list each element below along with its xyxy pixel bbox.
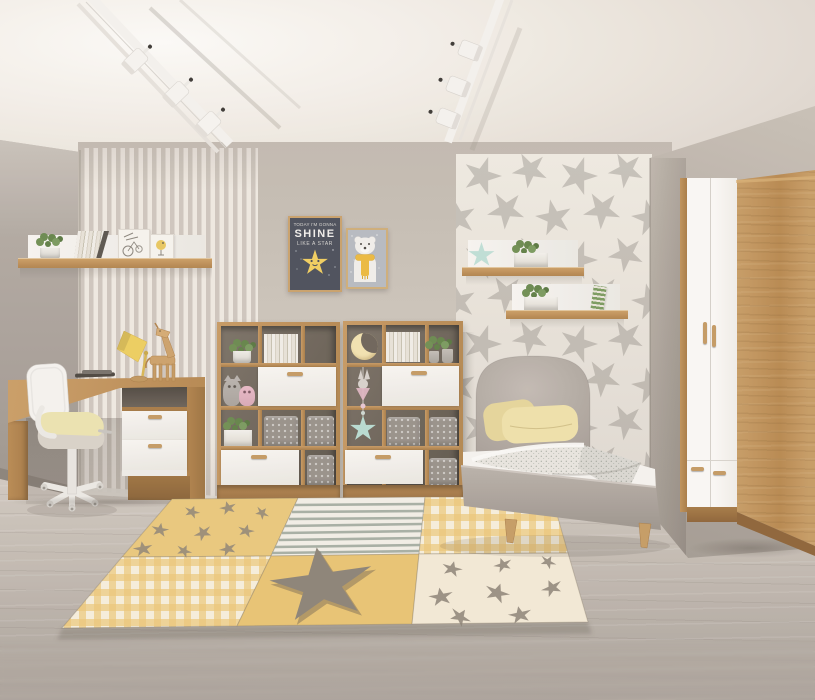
bookshelf-left	[217, 322, 340, 505]
hanging-garland-toy	[345, 367, 381, 445]
storage-basket	[264, 416, 298, 446]
track-lights	[0, 0, 815, 170]
moon-crescent-cut	[361, 333, 378, 353]
plush-pig	[239, 386, 255, 406]
plant-pot	[233, 351, 251, 363]
wardrobe-handle	[703, 322, 707, 344]
drawer-handle	[251, 455, 267, 459]
giraffe-figurine	[146, 323, 175, 381]
plant-foliage	[512, 245, 520, 253]
storage-basket	[387, 417, 420, 446]
rug-patch-stars-yellow	[122, 498, 298, 557]
spotlights-right	[426, 36, 484, 130]
planter-box	[224, 430, 252, 446]
plant-pot	[429, 351, 439, 363]
toy-ear	[224, 375, 232, 381]
wardrobe-left-edge	[680, 178, 687, 512]
books	[264, 334, 298, 363]
star-shelf-upper-board	[462, 267, 584, 276]
bear-illustration	[348, 230, 382, 283]
wardrobe-plinth	[687, 507, 737, 522]
drawer-handle	[375, 455, 391, 459]
poster-line-2: SHINE	[290, 228, 340, 240]
planter-box	[514, 253, 548, 267]
bed-shadow	[440, 535, 670, 557]
toy-ear	[233, 375, 241, 381]
wardrobe-side-panel	[737, 168, 815, 558]
plant-foliage	[425, 341, 433, 349]
planter-box	[524, 297, 558, 310]
desk-lamp	[117, 331, 148, 382]
star-shelf-lower-board	[506, 310, 628, 319]
bear-poster	[346, 228, 388, 289]
shelf-shadow	[510, 318, 624, 328]
storage-basket	[307, 416, 334, 446]
drawer-handle	[287, 372, 303, 376]
wall-shelf-board	[18, 258, 212, 268]
star-motif	[292, 247, 338, 279]
plant-foliage	[522, 289, 530, 297]
wardrobe-drawer-handle	[691, 467, 704, 471]
wardrobe-drawer-seam	[687, 460, 737, 461]
plant-foliage	[36, 238, 44, 246]
storage-basket	[307, 455, 334, 485]
wardrobe-drawer-handle	[713, 471, 726, 475]
wardrobe-door-seam	[710, 178, 711, 512]
bed	[440, 330, 690, 560]
books	[386, 332, 420, 362]
rug-patch-gingham	[62, 556, 271, 628]
bedroom-photo: TODAY I'M GONNA SHINE LIKE A STAR	[0, 0, 815, 700]
spotlights-left	[121, 39, 230, 138]
shelf	[221, 406, 336, 410]
poster-line-1: TODAY I'M GONNA	[290, 222, 340, 227]
shine-poster: TODAY I'M GONNA SHINE LIKE A STAR	[288, 216, 342, 292]
drawer-handle	[411, 371, 427, 375]
plant-foliage	[223, 422, 231, 430]
wardrobe-handle	[712, 325, 716, 347]
moon-pillow	[351, 333, 378, 360]
shelf-shadow	[20, 267, 212, 279]
foreground-blur	[0, 640, 815, 700]
